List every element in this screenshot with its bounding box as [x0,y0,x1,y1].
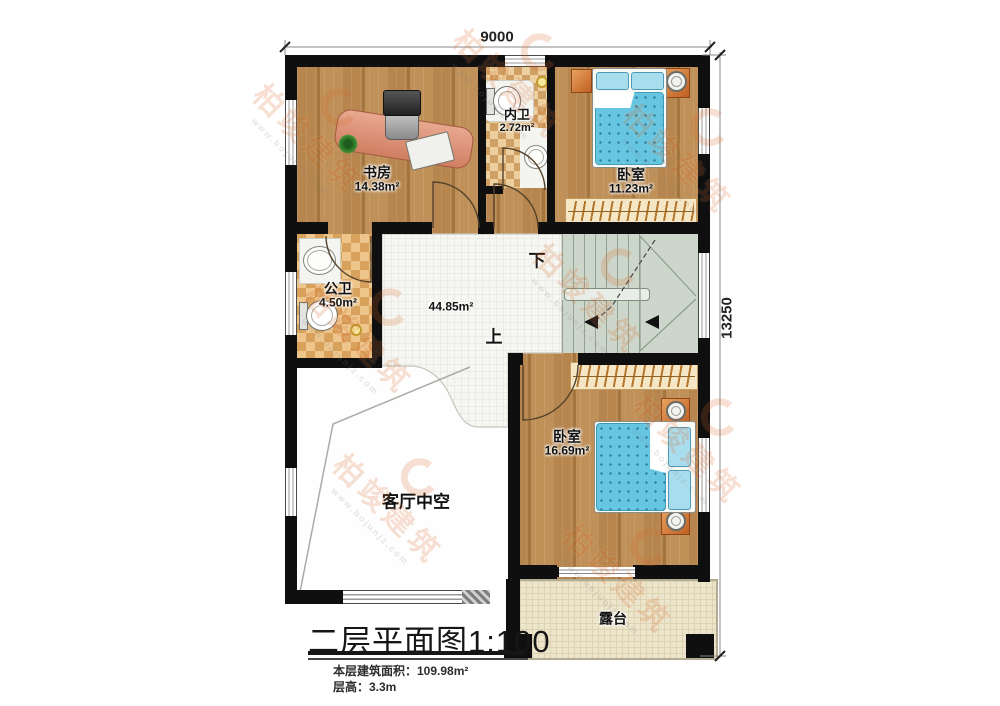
sliding-door [557,567,637,577]
window [505,55,545,67]
dimension-width: 9000 [480,29,513,46]
column [462,590,490,604]
wardrobe-rod [568,211,694,212]
stair-up-label: 上 [486,329,503,348]
window [285,272,297,335]
public-bath-label: 公卫 4.50m² [319,282,357,311]
wardrobe-top [565,198,697,224]
inner-bath-sink [524,145,548,169]
wall-bottom-bedroom [633,565,710,579]
title-underline-thin [308,658,528,660]
pillow [631,72,664,90]
window [698,108,710,154]
bedroom-bottom-label: 卧室 16.69m² [545,430,590,459]
floor-drain [350,324,362,336]
wall-interior [478,222,494,234]
wall-interior [578,353,710,365]
wall-interior [285,358,382,368]
wall-interior [508,353,520,580]
computer-monitor [383,90,421,116]
wall-bottom-bedroom [508,565,557,579]
window [698,253,710,338]
nightstand-lamp [666,71,687,92]
pillow [596,72,629,90]
wall-top [285,55,710,67]
void-label: 客厅中空 [382,494,450,513]
nightstand-lamp [666,401,686,421]
sheet-fold [595,92,662,108]
wardrobe-bottom [570,362,698,390]
public-bath-sink [303,246,336,275]
pillow [668,427,691,467]
floor-height-note: 层高：3.3m [333,678,396,695]
stair-treads-lower [562,300,640,353]
wardrobe-rod [573,376,695,377]
terrace-label: 露台 [599,611,627,626]
window [343,590,462,604]
wall-interior [547,67,555,222]
study-label: 书房 14.38m² [355,166,400,195]
wall-interior [372,222,432,234]
inner-bath-label: 内卫 2.72m² [500,108,535,134]
plant [338,134,358,154]
nightstand-lamp [666,511,686,531]
nightstand [571,69,592,93]
window [285,468,297,516]
wall-interior [372,234,382,360]
title-underline-thick [308,651,524,655]
wall-interior [538,222,710,234]
stair-treads-upper [562,234,640,288]
window [698,438,710,512]
wall-interior [486,186,503,194]
sheet-fold [650,423,666,509]
wall-interior [285,222,328,234]
void-floor [297,360,508,592]
hall-area-label: 44.85m² [429,300,474,313]
floor-plan: 9000 13250 书房 14.38m² 内卫 2.72m² 卧室 11.23… [0,0,1000,706]
wall-interior [478,67,486,222]
bedroom-top-label: 卧室 11.23m² [609,168,653,197]
window [285,100,297,165]
pillow [668,470,691,510]
dimension-height: 13250 [719,297,736,339]
stair-down-label: 下 [529,253,546,272]
terrace-post [686,634,714,658]
floor-area-note: 本层建筑面积：109.98m² [333,662,468,679]
stair-handrail [564,288,650,301]
